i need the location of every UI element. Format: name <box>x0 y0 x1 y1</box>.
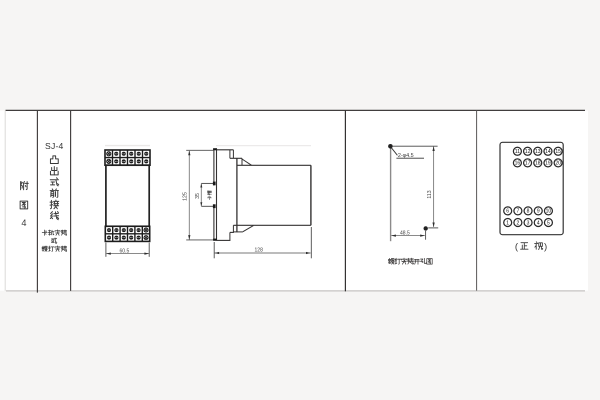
svg-text:60.5: 60.5 <box>120 248 130 254</box>
svg-text:1: 1 <box>506 220 509 226</box>
svg-text:): ) <box>544 241 547 252</box>
svg-text:2-φ4.5: 2-φ4.5 <box>398 153 414 159</box>
svg-text:20: 20 <box>555 161 561 167</box>
svg-text:125: 125 <box>182 192 188 201</box>
svg-text:48.5: 48.5 <box>400 230 410 236</box>
svg-text:15: 15 <box>555 149 561 155</box>
svg-text:19: 19 <box>545 161 551 167</box>
svg-text:14: 14 <box>545 149 551 155</box>
svg-text:35: 35 <box>195 193 201 199</box>
svg-text:3: 3 <box>527 220 530 226</box>
svg-text:16: 16 <box>515 161 521 167</box>
svg-text:12: 12 <box>525 149 531 155</box>
svg-text:2: 2 <box>516 220 519 226</box>
svg-text:17: 17 <box>525 161 531 167</box>
svg-text:10: 10 <box>546 209 552 215</box>
svg-text:11: 11 <box>515 149 520 155</box>
svg-text:13: 13 <box>535 149 541 155</box>
svg-text:113: 113 <box>427 190 433 198</box>
svg-text:4: 4 <box>537 220 540 226</box>
svg-text:SJ-4: SJ-4 <box>45 141 63 151</box>
svg-text:6: 6 <box>506 209 509 215</box>
svg-text:7: 7 <box>516 209 519 215</box>
svg-text:8: 8 <box>527 209 530 215</box>
svg-text:4: 4 <box>21 218 26 228</box>
svg-text:18: 18 <box>535 161 541 167</box>
svg-text:128: 128 <box>255 247 264 253</box>
svg-text:5: 5 <box>547 220 550 226</box>
svg-text:9: 9 <box>537 209 540 215</box>
